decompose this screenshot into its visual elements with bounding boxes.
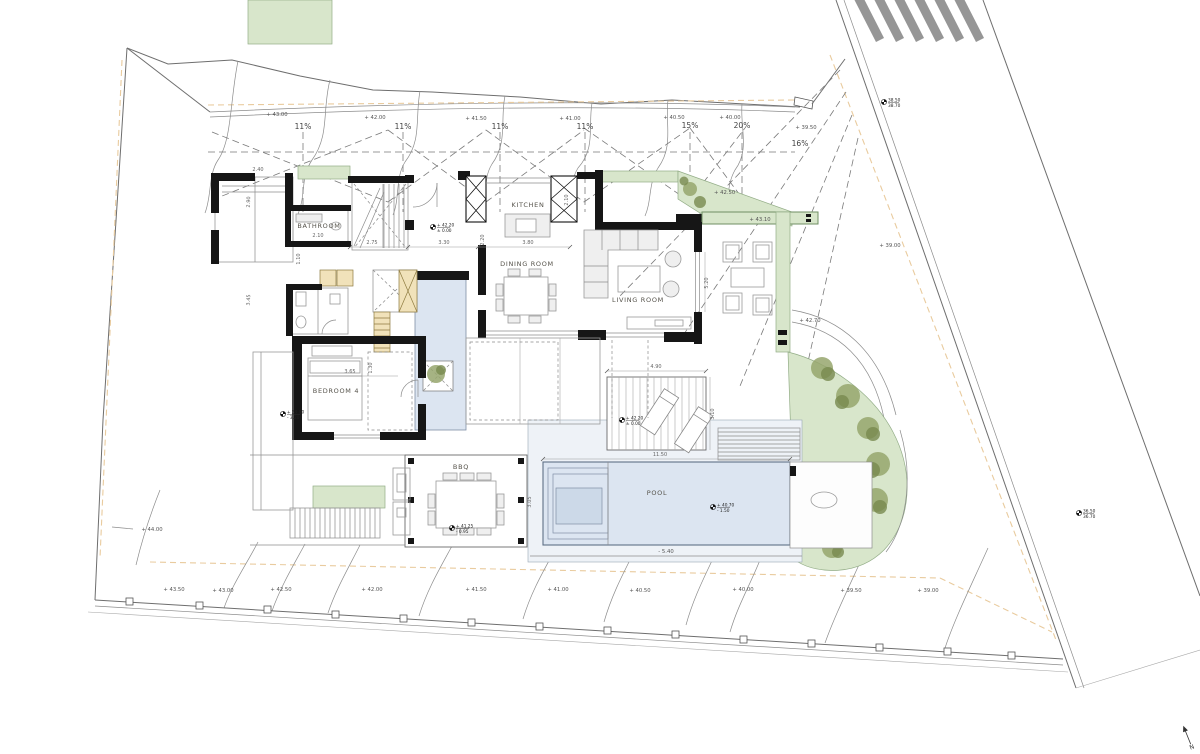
contour-label: + 41.00 [547,587,569,593]
staircase-main [348,176,412,250]
fence-post [264,606,271,613]
slope-label-3: 11% [492,122,509,131]
terrace-lounge [723,242,772,315]
planter-north-strip [600,171,678,182]
fence-post [876,644,883,651]
site-plan-drawing: 11% 11% 11% 11% 15% 20% 16% + 43.00 + 42… [0,0,1200,754]
slope-labels: 11% 11% 11% 11% 15% 20% 16% [295,121,809,148]
svg-text:- 0.95: - 0.95 [456,529,469,535]
contour-label: + 42.00 [364,115,386,121]
dim-bathroom: 2.10 [312,233,323,239]
fence-post [604,627,611,634]
north-label: N [1189,743,1196,751]
contour-label: + 43.00 [212,588,234,594]
outdoor-table [731,268,764,287]
fence-post [808,640,815,647]
fence-post [126,598,133,605]
contour-label: + 42.00 [361,587,383,593]
terrace-east [790,462,872,548]
room-label-pool: POOL [647,489,668,497]
room-kitchen: KITCHEN [466,170,603,237]
sun-deck [607,377,713,453]
north-arrow: N [1181,725,1196,752]
dresser [312,346,352,356]
fence-post [468,619,475,626]
contour-label: + 39.00 [917,588,939,594]
planter-bar-level-label: + 43.10 [749,217,771,223]
contour-label: + 43.50 [163,587,185,593]
level-marker-road-lower: 36.50 36.70 [1076,508,1095,520]
slope-label-2: 11% [395,122,412,131]
slope-label-6: 20% [734,121,751,130]
tree-icon [680,177,689,186]
dim-bedroom-side: 1.30 [368,362,374,373]
level-marker-entry: + 42.20 ± 0.00 [430,222,454,234]
wardrobe [320,270,336,286]
room-label-bbq: BBQ [453,463,469,471]
wardrobe [337,270,353,286]
pouf [663,281,679,297]
rug [618,266,660,292]
boundary-fence [88,598,1068,672]
slope-label-1: 11% [295,122,312,131]
dining-table [504,277,548,315]
wc-shower [286,284,348,336]
contour-label: + 39.50 [795,125,817,131]
dim-deck-width: 4.90 [650,364,661,370]
bathroom-vanity [296,214,322,222]
planter-top [248,0,332,44]
dim-hall: 2.75 [366,240,377,246]
room-living: LIVING ROOM [578,222,702,344]
dim-block-c: 1.10 [296,253,302,264]
dim-pool-depth: 3.05 [527,496,533,507]
site-level-west: + 44.00 [141,527,163,533]
tree-icon [694,196,706,208]
room-bathroom: BATHROOM [285,205,351,247]
entry [405,171,470,230]
planter-level-label: + 42.50 [714,190,736,196]
path-level-label: + 42.70 [799,318,821,324]
svg-text:38.70: 38.70 [888,103,901,109]
room-label-bedroom4: BEDROOM 4 [313,387,359,395]
dim-foyer: 2.20 [480,234,486,245]
shower-icon [296,292,306,306]
fence-post [740,636,747,643]
dim-bedroom-width: 3.65 [344,369,355,375]
slope-label-4: 11% [577,122,594,131]
dim-entry: 3.30 [438,240,449,246]
terrace-west [250,352,405,545]
slope-label-7: 16% [792,139,809,148]
sofa [584,230,658,298]
planter-northwest [298,166,350,179]
fence-post [944,648,951,655]
entry-door-arc [413,183,437,207]
room-label-living: LIVING ROOM [612,296,664,304]
svg-text:36.70: 36.70 [1083,514,1096,520]
contour-label: + 40.50 [663,115,685,121]
contour-label: + 40.50 [629,588,651,594]
contour-label: + 43.00 [266,112,288,118]
dim-kitchen-width: 3.80 [522,240,533,246]
room-dining: DINING ROOM [478,245,578,338]
svg-text:- 3.20: - 3.20 [287,415,300,421]
carport-block [211,173,293,264]
fence-post [400,615,407,622]
fence-post [1008,652,1015,659]
svg-text:± 0.00: ± 0.00 [626,421,641,427]
contour-label: + 41.50 [465,587,487,593]
contour-label: + 40.00 [732,587,754,593]
slope-label-5: 15% [682,121,699,130]
dim-block-d: 2.40 [252,167,263,173]
floor-plan-page: 11% 11% 11% 11% 15% 20% 16% + 43.00 + 42… [0,0,1200,754]
room-bedroom4: BEDROOM 4 3.65 1.30 [292,336,426,440]
svg-text:± 0.00: ± 0.00 [437,228,452,234]
contour-label: + 41.50 [465,116,487,122]
svg-text:- 1.50: - 1.50 [717,508,730,514]
contour-label: + 41.00 [559,116,581,122]
level-marker-road-upper: 38.50 38.70 [881,97,900,109]
planter-southwest [313,486,385,508]
fence-post [536,623,543,630]
room-label-kitchen: KITCHEN [511,201,544,209]
fence-post [196,602,203,609]
north-arrow-head [1181,725,1188,733]
dim-block-b: 3.45 [246,294,252,305]
pouf [665,251,681,267]
fence-post [672,631,679,638]
contour-label: + 42.50 [270,587,292,593]
apron-level-label: - 5.40 [658,549,674,555]
contour-label: + 39.50 [840,588,862,594]
dim-pool-width: 11.50 [653,452,667,458]
dim-kitchen-depth: 2.10 [564,194,570,205]
room-label-bathroom: BATHROOM [297,222,340,230]
crosswalk [858,0,980,40]
room-label-dining: DINING ROOM [500,260,554,268]
dim-block-a: 2.90 [246,196,252,207]
toilet-icon [296,316,306,328]
tv-console [627,317,691,329]
contour-label: + 40.00 [719,115,741,121]
basin-icon [330,294,340,304]
fence-post [332,611,339,618]
dim-deck-depth: 3.10 [710,408,716,419]
dim-living-depth: 5.20 [704,277,710,288]
site-level-east: + 39.00 [879,243,901,249]
